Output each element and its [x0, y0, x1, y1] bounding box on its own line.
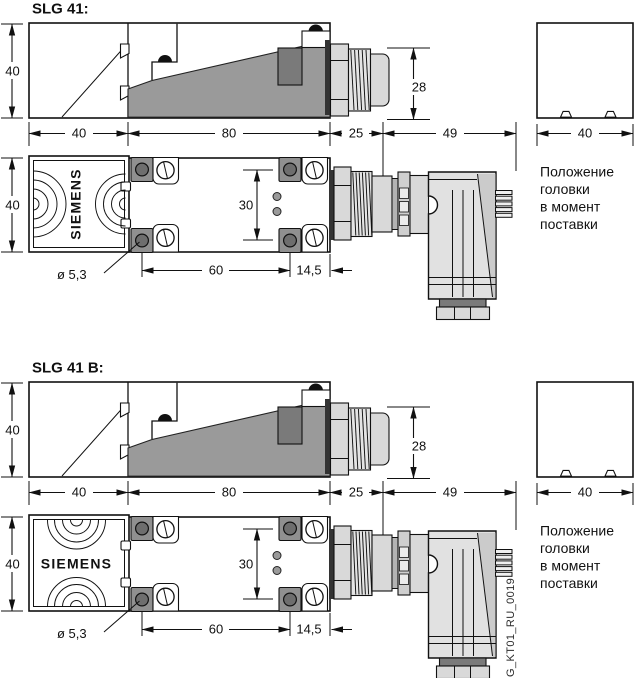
dim-label-plug-length: 49 [443, 485, 457, 500]
note-line: головки [540, 181, 590, 197]
dim-label-body-height: 40 [5, 64, 19, 79]
section-slg41: SLG 41: SIEMENS 40 40 80 25 49 40 28 40 … [1, 1, 633, 320]
note-line: Положение [540, 523, 614, 539]
section-slg41b: SLG 41 B: SIEMENS 40 40 80 25 49 40 28 4… [1, 360, 633, 678]
dim-label-head-box-width: 40 [578, 126, 592, 141]
section-title: SLG 41 B: [32, 360, 104, 377]
dim-label-hole-edge-offset: 14,5 [296, 263, 321, 278]
dim-label-hole-diameter: ø 5,3 [57, 267, 87, 282]
dim-label-body-width: 40 [5, 198, 19, 213]
section-title: SLG 41: [32, 1, 89, 18]
dim-label-hole-spacing: 60 [209, 622, 223, 637]
dim-label-led-spacing: 30 [239, 198, 253, 213]
dim-label-body-length: 80 [222, 126, 236, 141]
dim-label-gland-height: 28 [412, 439, 426, 454]
note-line: в момент [540, 558, 601, 574]
dim-label-body-height: 40 [5, 423, 19, 438]
head-position-note: Положение головки в момент поставки [540, 523, 614, 592]
slg41-dimension-drawing: SLG 41: SIEMENS 40 40 80 25 49 40 28 40 … [0, 0, 640, 678]
dim-label-body-width: 40 [5, 557, 19, 572]
dim-label-head-box-width: 40 [578, 485, 592, 500]
dim-label-head-length: 40 [72, 485, 86, 500]
dim-label-hole-spacing: 60 [209, 263, 223, 278]
note-line: Положение [540, 164, 614, 180]
brand-label: SIEMENS [41, 556, 112, 572]
brand-label: SIEMENS [68, 168, 84, 239]
note-line: в момент [540, 199, 601, 215]
dim-label-hole-diameter: ø 5,3 [57, 626, 87, 641]
dim-label-gland-length: 25 [349, 485, 363, 500]
dim-label-gland-length: 25 [349, 126, 363, 141]
dim-label-led-spacing: 30 [239, 557, 253, 572]
dim-label-hole-edge-offset: 14,5 [296, 622, 321, 637]
head-position-note: Положение головки в момент поставки [540, 164, 614, 233]
note-line: поставки [540, 575, 598, 591]
note-line: головки [540, 540, 590, 556]
dim-label-body-length: 80 [222, 485, 236, 500]
technical-drawing-page: SLG 41: SIEMENS 40 40 80 25 49 40 28 40 … [0, 0, 640, 678]
doc-code-label: G_KT01_RU_0019 [505, 578, 517, 677]
dim-label-gland-height: 28 [412, 80, 426, 95]
note-line: поставки [540, 216, 598, 232]
dim-label-plug-length: 49 [443, 126, 457, 141]
dim-label-head-length: 40 [72, 126, 86, 141]
